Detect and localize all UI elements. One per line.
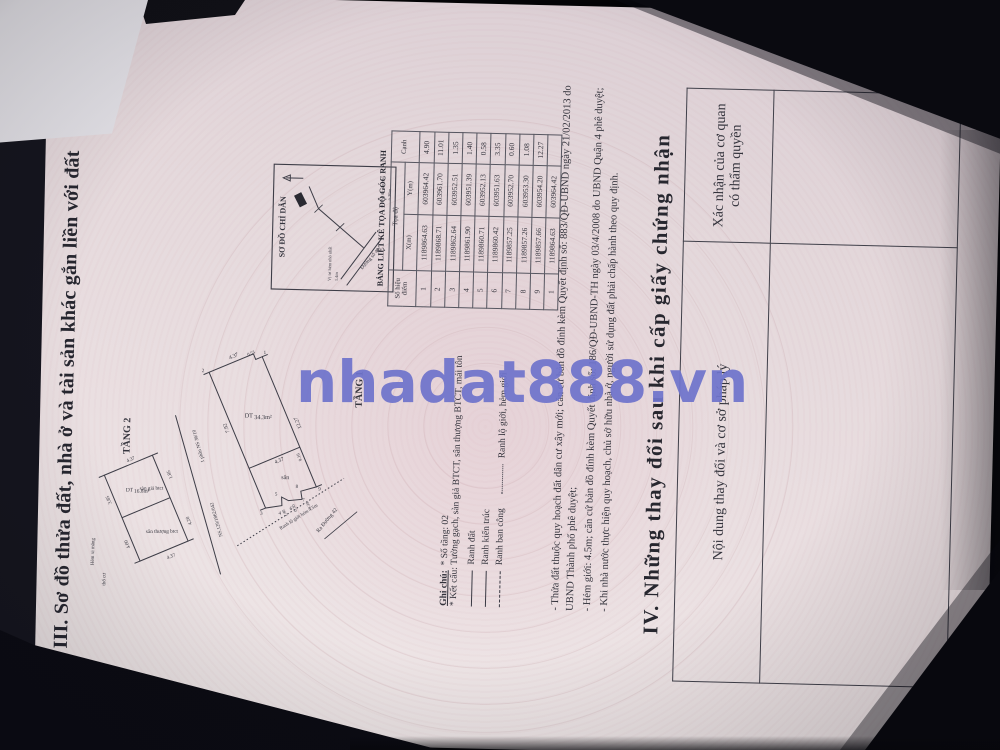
coord-table-body: 11189864.63603964.424.9021189868.7160396… xyxy=(416,132,562,310)
coord-cell: 1189861.90 xyxy=(459,215,475,272)
tang2-title: TẦNG 2 xyxy=(120,417,134,454)
coord-cell: 603961.70 xyxy=(433,163,448,215)
coord-cell: 12.27 xyxy=(533,134,548,165)
yard-label: sân xyxy=(281,475,289,481)
coord-cell: 8 xyxy=(515,273,530,309)
coord-cell: 1189864.63 xyxy=(417,214,433,271)
col-header: Y(m) xyxy=(404,162,419,214)
dim-label: 12.27 xyxy=(293,416,303,430)
coord-cell: 1.35 xyxy=(448,132,463,163)
legend-label: Ranh đất xyxy=(467,530,478,564)
coord-cell: 5 xyxy=(473,272,488,308)
area-prefix: DT xyxy=(126,487,134,493)
legend-label: Ranh kiến trúc xyxy=(481,509,492,565)
site-watermark: nhadat888.vn xyxy=(296,348,748,416)
coord-cell: 0.60 xyxy=(505,134,520,165)
coord-cell: 3 xyxy=(444,272,459,308)
coord-cell: 11.01 xyxy=(434,132,449,163)
alley-label: Hẻm xi măng xyxy=(91,537,97,565)
coord-cell: 0.58 xyxy=(476,133,491,164)
coord-cell: 1189868.71 xyxy=(431,215,447,272)
dim-label: 3.35 xyxy=(304,500,312,510)
legend-line-solid xyxy=(470,571,472,607)
empty-cell xyxy=(760,243,958,688)
land-label: thổ cư xyxy=(101,573,107,586)
col-header-content: Nội dung thay đổi và cơ sở pháp lý xyxy=(673,241,771,683)
coord-cell: 603951.39 xyxy=(461,164,476,216)
coord-cell: 4.90 xyxy=(420,132,435,163)
point-label: 9 xyxy=(318,487,321,492)
coord-cell: 6 xyxy=(487,273,502,309)
point-label: 7 xyxy=(302,498,305,503)
coord-cell: 1189857.25 xyxy=(502,217,518,274)
coord-cell: 3.35 xyxy=(490,133,505,164)
point-label: 3 xyxy=(260,512,263,517)
coord-cell: 603952.13 xyxy=(475,164,490,216)
col-header-confirm: Xác nhận của cơ quan có thẩm quyền xyxy=(683,88,774,243)
point-label: 5 xyxy=(275,493,278,498)
coord-cell: 603954.20 xyxy=(532,166,547,218)
coord-table: Số hiệu điểm Tọa độ Cạnh X(m) Y(m) 11189… xyxy=(387,130,562,310)
coord-cell: 2 xyxy=(430,271,445,307)
dim-label: 4.37 xyxy=(126,456,136,464)
guilloche-rosette xyxy=(26,0,44,738)
dim-label: 1.40 xyxy=(280,508,288,518)
dim-label: 0.53 xyxy=(246,349,256,357)
legend-line-dotted xyxy=(501,464,503,494)
photo-scene: III. Sơ đồ thửa đất, nhà ở và tài sản kh… xyxy=(0,0,1000,750)
legend-line-solid xyxy=(484,571,486,607)
coord-cell: 603964.42 xyxy=(418,163,433,215)
coord-cell: 1189862.64 xyxy=(445,215,461,272)
coord-cell: 1.08 xyxy=(519,134,534,165)
house-marker xyxy=(294,192,307,207)
coord-cell: 9 xyxy=(530,274,545,310)
coord-cell: 1189857.66 xyxy=(530,217,546,274)
coord-cell: 1.40 xyxy=(462,133,477,164)
north-arrow-icon xyxy=(283,175,303,181)
coord-cell: 1 xyxy=(416,271,431,307)
col-header: Số hiệu điểm xyxy=(388,270,417,306)
coord-cell: 1189860.42 xyxy=(488,216,504,273)
empty-cell xyxy=(770,90,961,247)
neighbor-label: NS.129/1862/042 xyxy=(210,501,224,537)
coord-cell: 603951.63 xyxy=(489,164,504,216)
map-label: 1.4m xyxy=(334,272,339,282)
map-label: Vị trí hẻm nhỏ nhất xyxy=(327,246,333,281)
floor-label: sàn giả btct xyxy=(140,486,164,492)
guide-map-title: SƠ ĐỒ CHỈ DẪN xyxy=(276,196,287,258)
col-header: X(m) xyxy=(403,214,419,271)
dim-label: 9.16 xyxy=(295,452,303,462)
neighbor-label: 1 phần NS 36/10 xyxy=(192,428,206,462)
coord-cell: 1189860.71 xyxy=(474,216,490,273)
point-label: 8 xyxy=(296,485,299,490)
coord-cell: 4 xyxy=(459,272,474,308)
point-label: 2 xyxy=(202,369,205,374)
coord-cell: 603952.70 xyxy=(503,165,518,217)
area-label: 34.3m² xyxy=(254,414,272,421)
col-header: Cạnh xyxy=(391,131,420,163)
coord-cell: 1189857.26 xyxy=(516,217,532,274)
area-prefix: DT xyxy=(245,412,254,419)
coord-cell: 603952.51 xyxy=(447,163,462,215)
coord-cell: 7 xyxy=(501,273,516,309)
coord-cell: 603953.30 xyxy=(518,165,533,217)
legend-line-dashed xyxy=(498,571,500,607)
legend-label: Ranh ban công xyxy=(495,508,506,565)
section3-heading: III. Sơ đồ thửa đất, nhà ở và tài sản kh… xyxy=(50,150,85,649)
